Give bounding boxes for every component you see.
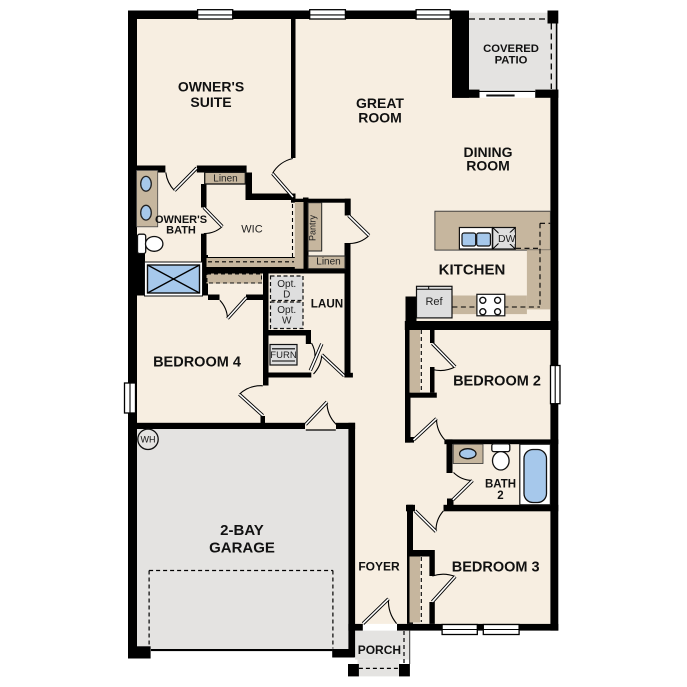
svg-text:WIC: WIC xyxy=(241,224,262,236)
svg-text:Linen: Linen xyxy=(316,257,340,268)
svg-text:D: D xyxy=(283,290,290,301)
svg-text:BATH: BATH xyxy=(485,479,516,491)
svg-text:WH: WH xyxy=(141,435,156,445)
svg-text:Ref: Ref xyxy=(425,296,443,308)
svg-text:BEDROOM 3: BEDROOM 3 xyxy=(452,560,540,576)
svg-text:DW: DW xyxy=(498,233,516,245)
svg-text:PORCH: PORCH xyxy=(358,643,401,657)
svg-text:BEDROOM 2: BEDROOM 2 xyxy=(453,374,541,390)
svg-text:FURN: FURN xyxy=(270,350,297,361)
svg-text:LAUN: LAUN xyxy=(311,298,343,311)
svg-text:OWNER'S: OWNER'S xyxy=(178,79,244,95)
svg-text:Pantry: Pantry xyxy=(308,214,318,241)
svg-text:SUITE: SUITE xyxy=(190,94,231,110)
svg-text:BATH: BATH xyxy=(166,225,196,237)
svg-text:COVERED: COVERED xyxy=(483,43,539,55)
svg-text:BEDROOM 4: BEDROOM 4 xyxy=(153,355,241,371)
svg-text:Opt.: Opt. xyxy=(277,279,296,290)
svg-text:FOYER: FOYER xyxy=(358,560,400,574)
svg-text:W: W xyxy=(282,316,292,327)
svg-text:Linen: Linen xyxy=(213,174,237,185)
svg-text:2-BAY: 2-BAY xyxy=(220,522,264,539)
svg-text:Opt.: Opt. xyxy=(277,305,296,316)
svg-text:GARAGE: GARAGE xyxy=(209,540,275,557)
svg-text:ROOM: ROOM xyxy=(358,110,402,126)
svg-text:KITCHEN: KITCHEN xyxy=(439,262,506,279)
svg-text:2: 2 xyxy=(497,490,503,502)
svg-text:ROOM: ROOM xyxy=(466,158,510,174)
svg-text:PATIO: PATIO xyxy=(495,55,528,67)
